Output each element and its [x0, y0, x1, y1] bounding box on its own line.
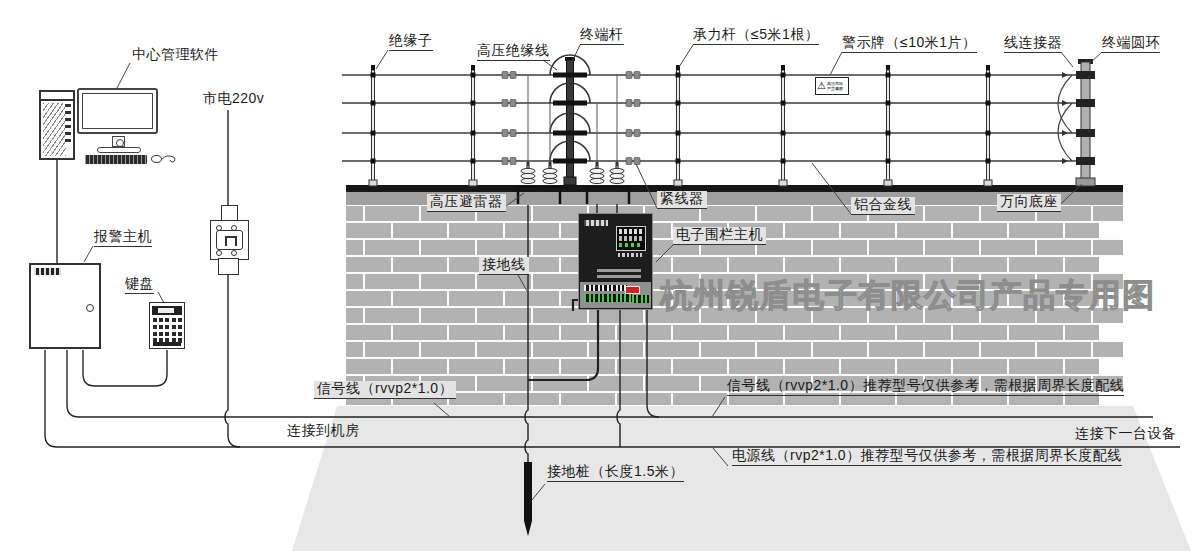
fence-posts	[369, 65, 992, 186]
label-wire-tensioner: 紧线器	[657, 191, 707, 209]
ground-stake	[524, 462, 532, 536]
terminal-strip	[584, 285, 627, 291]
ground-area	[292, 406, 1191, 551]
keypad-lcd	[158, 308, 174, 313]
keyboard	[85, 155, 147, 164]
terminal-strip	[584, 294, 632, 302]
breaker-screw	[231, 250, 237, 256]
label-warning-sign: 警示牌（≤10米1片）	[842, 35, 977, 53]
controller-terminal-panel	[580, 282, 651, 308]
controller-red-button	[625, 286, 640, 294]
breaker-body	[210, 220, 249, 260]
terminal-pole	[550, 55, 590, 185]
alarm-host-label-chip	[34, 268, 61, 275]
alarm-host-lock	[86, 304, 94, 312]
label-connect-next: 连接下一台设备	[1075, 426, 1177, 441]
breaker-screw	[216, 250, 222, 256]
monitor	[77, 88, 158, 134]
terminal-ring-pole	[1058, 59, 1095, 186]
label-insulator: 绝缘子	[389, 33, 433, 51]
label-wire-connector: 线连接器	[1004, 35, 1062, 53]
breaker-bottom-terminal	[218, 258, 239, 275]
keypad-foot	[153, 342, 181, 346]
fence-wires	[342, 75, 1085, 161]
controller-display	[616, 226, 646, 251]
label-terminal-pole: 终端杆	[580, 27, 624, 45]
label-alloy-wire: 铝合金线	[851, 197, 915, 215]
label-load-pole: 承力杆（≤5米1根）	[693, 27, 819, 45]
label-ground-stake: 接地桩（长度1.5米）	[547, 464, 684, 482]
watermark-text: 杭州锐盾电子有限公司产品专用图	[659, 277, 1155, 313]
warning-sign-plate: ⚠ 高压危险 严禁攀爬	[815, 77, 849, 95]
fence-controller	[578, 213, 653, 310]
keypad-screen	[152, 306, 182, 315]
label-hv-arrester: 高压避雷器	[427, 194, 506, 212]
label-keypad: 键盘	[125, 276, 154, 294]
circuit-breaker	[210, 205, 247, 273]
mouse	[151, 155, 162, 163]
breaker-switch-glyph	[225, 236, 237, 246]
label-terminal-ring: 终端圆环	[1102, 35, 1160, 53]
label-hv-insulated-wire: 高压绝缘线	[477, 43, 550, 61]
label-universal-base: 万向底座	[997, 194, 1061, 212]
breaker-switch	[216, 230, 243, 250]
display-row	[619, 229, 643, 234]
controller-logo	[584, 220, 608, 226]
label-fence-host: 电子围栏主机	[673, 227, 766, 245]
label-connect-room: 连接到机房	[287, 423, 360, 438]
keypad-device	[149, 302, 185, 349]
label-power-wire: 电源线（rvp2*1.0）推荐型号仅供参考，需根据周界长度配线	[732, 448, 1122, 466]
label-center-software: 中心管理软件	[132, 47, 219, 62]
label-mains-220v: 市电220v	[203, 91, 264, 106]
label-ground-wire: 接地线	[479, 257, 529, 275]
label-signal-wire-right: 信号线（rvvp2*1.0）推荐型号仅供参考，需根据周界长度配线	[727, 378, 1124, 396]
label-signal-wire-left: 信号线（rvvp2*1.0）	[314, 381, 456, 399]
tower-vent-hatch	[43, 103, 66, 156]
tower-drive-bays	[65, 104, 71, 146]
warning-triangle-icon: ⚠	[817, 81, 826, 91]
controller-buttons	[618, 253, 645, 257]
controller-text-lines	[597, 269, 641, 278]
monitor-neck	[112, 136, 125, 147]
monitor-base	[97, 147, 141, 153]
display-row	[619, 243, 643, 247]
tower-top-panel	[41, 92, 73, 101]
alarm-host-box	[29, 263, 101, 349]
terminal-strip	[632, 295, 649, 303]
computer-tower	[39, 90, 75, 160]
display-row	[619, 236, 643, 241]
monitor-screen	[82, 93, 153, 129]
keypad-keys	[153, 318, 182, 344]
warning-sign-line2: 严禁攀爬	[827, 86, 843, 91]
label-alarm-host: 报警主机	[94, 229, 152, 247]
diagram-canvas: 杭州锐盾电子有限公司产品专用图	[0, 0, 1201, 551]
monitor-neck-hinge	[116, 139, 124, 147]
